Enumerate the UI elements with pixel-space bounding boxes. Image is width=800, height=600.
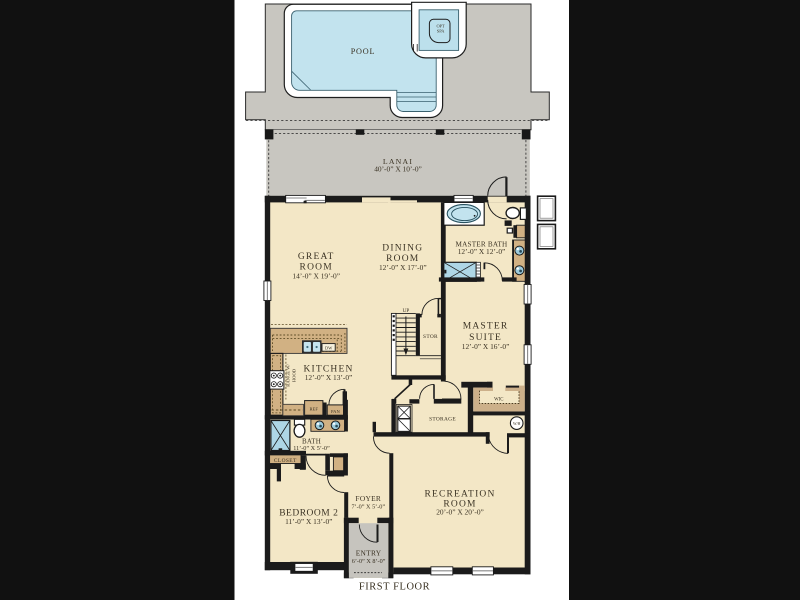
svg-text:REF: REF <box>309 406 318 411</box>
svg-text:HOOD: HOOD <box>291 368 296 382</box>
svg-text:7’-0” X 5’-0”: 7’-0” X 5’-0” <box>351 504 385 511</box>
svg-text:STOR: STOR <box>423 334 438 340</box>
svg-text:6’-0” X 8’-0”: 6’-0” X 8’-0” <box>352 558 386 565</box>
svg-text:STORAGE: STORAGE <box>429 417 456 423</box>
svg-text:DINING: DINING <box>382 244 423 254</box>
svg-text:DW: DW <box>325 346 333 351</box>
svg-text:SPA: SPA <box>437 29 445 34</box>
svg-text:UP: UP <box>403 308 410 314</box>
svg-text:20’-0” X 20’-0”: 20’-0” X 20’-0” <box>436 507 484 516</box>
svg-text:FIRST FLOOR: FIRST FLOOR <box>359 582 430 593</box>
svg-text:MASTER: MASTER <box>463 322 509 332</box>
svg-text:RECREATION: RECREATION <box>424 489 495 499</box>
svg-text:CLOSET: CLOSET <box>274 458 297 464</box>
svg-text:40’-0” X 10’-0”: 40’-0” X 10’-0” <box>374 165 422 174</box>
svg-text:12’-0” X 16’-0”: 12’-0” X 16’-0” <box>462 342 510 351</box>
svg-text:ENTRY: ENTRY <box>356 549 382 558</box>
svg-text:12’-0” X 12’-0”: 12’-0” X 12’-0” <box>458 247 506 256</box>
svg-text:WIC: WIC <box>494 397 503 402</box>
svg-text:PAN: PAN <box>331 409 340 414</box>
svg-text:RANGE W/: RANGE W/ <box>286 364 291 387</box>
svg-text:11’-0” X 13’-0”: 11’-0” X 13’-0” <box>285 517 332 526</box>
svg-text:FOYER: FOYER <box>355 494 381 503</box>
svg-text:POOL: POOL <box>351 47 376 56</box>
svg-text:W/H: W/H <box>513 422 521 426</box>
svg-text:11’-0” X 5’-0”: 11’-0” X 5’-0” <box>293 445 330 452</box>
svg-text:GREAT: GREAT <box>298 252 335 262</box>
svg-text:14’-0” X 19’-0”: 14’-0” X 19’-0” <box>292 272 340 281</box>
svg-text:12’-0” X 17’-0”: 12’-0” X 17’-0” <box>379 263 427 272</box>
svg-text:12’-0” X 13’-0”: 12’-0” X 13’-0” <box>305 373 353 382</box>
